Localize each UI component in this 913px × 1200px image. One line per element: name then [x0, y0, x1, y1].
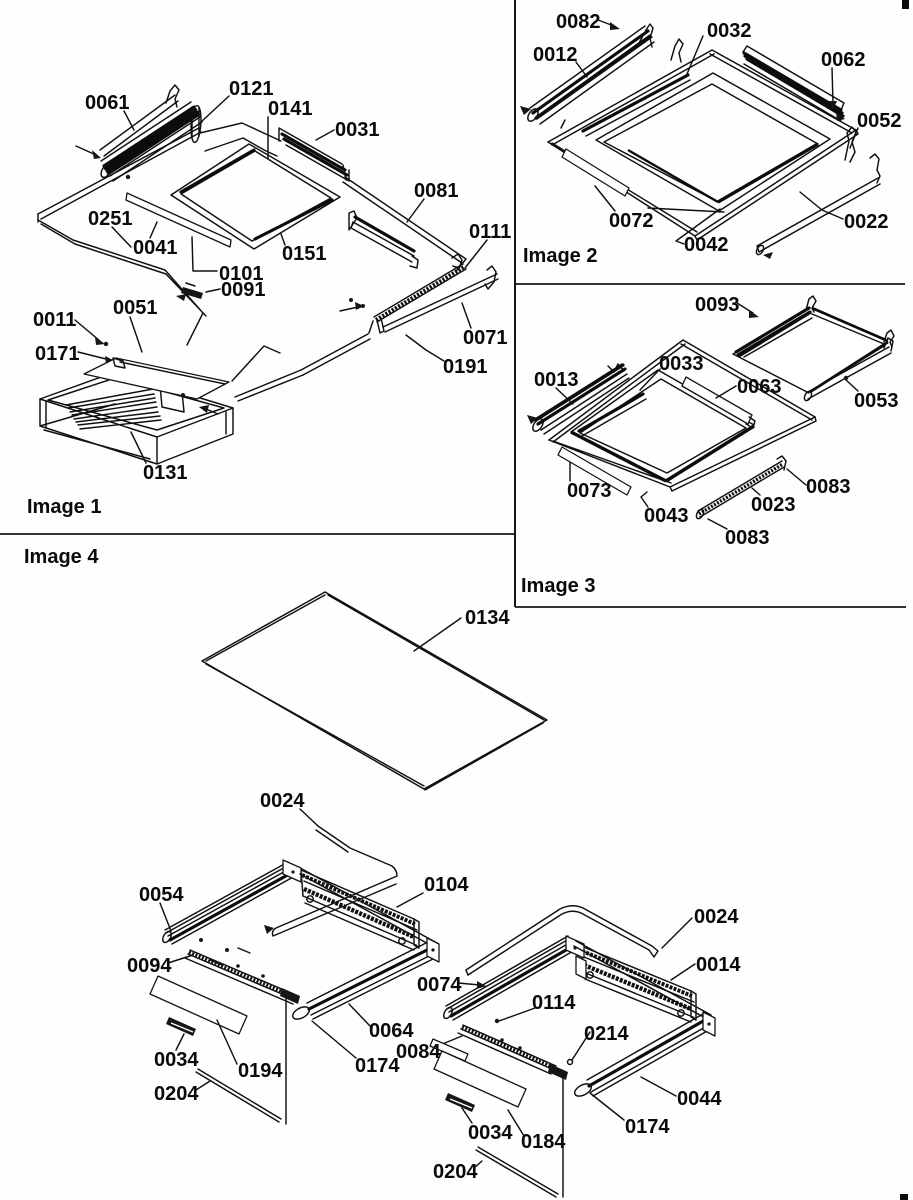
svg-text:0141: 0141	[268, 98, 313, 120]
svg-text:0194: 0194	[238, 1060, 283, 1082]
svg-text:Image 1: Image 1	[27, 496, 101, 518]
svg-text:0042: 0042	[684, 234, 729, 256]
svg-text:0191: 0191	[443, 356, 488, 378]
svg-text:0012: 0012	[533, 44, 578, 66]
svg-text:0044: 0044	[677, 1088, 722, 1110]
svg-text:0032: 0032	[707, 20, 752, 42]
svg-text:0184: 0184	[521, 1131, 566, 1153]
svg-text:0174: 0174	[625, 1116, 670, 1138]
svg-text:0071: 0071	[463, 327, 508, 349]
svg-text:0094: 0094	[127, 955, 172, 977]
svg-text:0114: 0114	[532, 992, 576, 1014]
svg-text:0034: 0034	[468, 1122, 513, 1144]
svg-text:0013: 0013	[534, 369, 579, 391]
svg-text:0062: 0062	[821, 49, 866, 71]
svg-text:Image 2: Image 2	[523, 245, 597, 267]
svg-text:0061: 0061	[85, 92, 130, 114]
svg-text:Image 4: Image 4	[24, 546, 99, 568]
svg-text:0022: 0022	[844, 211, 889, 233]
svg-text:0111: 0111	[469, 221, 511, 243]
svg-text:0072: 0072	[609, 210, 654, 232]
svg-text:0063: 0063	[737, 376, 782, 398]
svg-text:0074: 0074	[417, 974, 462, 996]
svg-text:0031: 0031	[335, 119, 380, 141]
svg-text:0083: 0083	[725, 527, 770, 549]
svg-text:0093: 0093	[695, 294, 740, 316]
svg-text:0151: 0151	[282, 243, 327, 265]
svg-text:0174: 0174	[355, 1055, 400, 1077]
svg-text:0204: 0204	[154, 1083, 199, 1105]
svg-text:0043: 0043	[644, 505, 689, 527]
svg-text:0084: 0084	[396, 1041, 441, 1063]
svg-text:0104: 0104	[424, 874, 469, 896]
svg-text:0024: 0024	[260, 790, 305, 812]
svg-text:Image 3: Image 3	[521, 575, 595, 597]
svg-text:0023: 0023	[751, 494, 796, 516]
svg-text:0121: 0121	[229, 78, 274, 100]
svg-text:0082: 0082	[556, 11, 601, 33]
svg-text:0204: 0204	[433, 1161, 478, 1183]
svg-text:0051: 0051	[113, 297, 158, 319]
svg-text:0214: 0214	[584, 1023, 629, 1045]
svg-text:0041: 0041	[133, 237, 178, 259]
svg-text:0081: 0081	[414, 180, 459, 202]
svg-text:0052: 0052	[857, 110, 902, 132]
svg-text:0083: 0083	[806, 476, 851, 498]
svg-text:0011: 0011	[33, 309, 76, 331]
svg-text:0053: 0053	[854, 390, 899, 412]
svg-text:0014: 0014	[696, 954, 741, 976]
svg-text:0073: 0073	[567, 480, 612, 502]
svg-text:0034: 0034	[154, 1049, 199, 1071]
svg-text:0033: 0033	[659, 353, 704, 375]
svg-text:0171: 0171	[35, 343, 80, 365]
svg-text:0131: 0131	[143, 462, 188, 484]
svg-text:0251: 0251	[88, 208, 133, 230]
svg-text:0134: 0134	[465, 607, 510, 629]
svg-text:0024: 0024	[694, 906, 739, 928]
svg-text:0064: 0064	[369, 1020, 414, 1042]
svg-text:0091: 0091	[221, 279, 266, 301]
svg-text:0054: 0054	[139, 884, 184, 906]
